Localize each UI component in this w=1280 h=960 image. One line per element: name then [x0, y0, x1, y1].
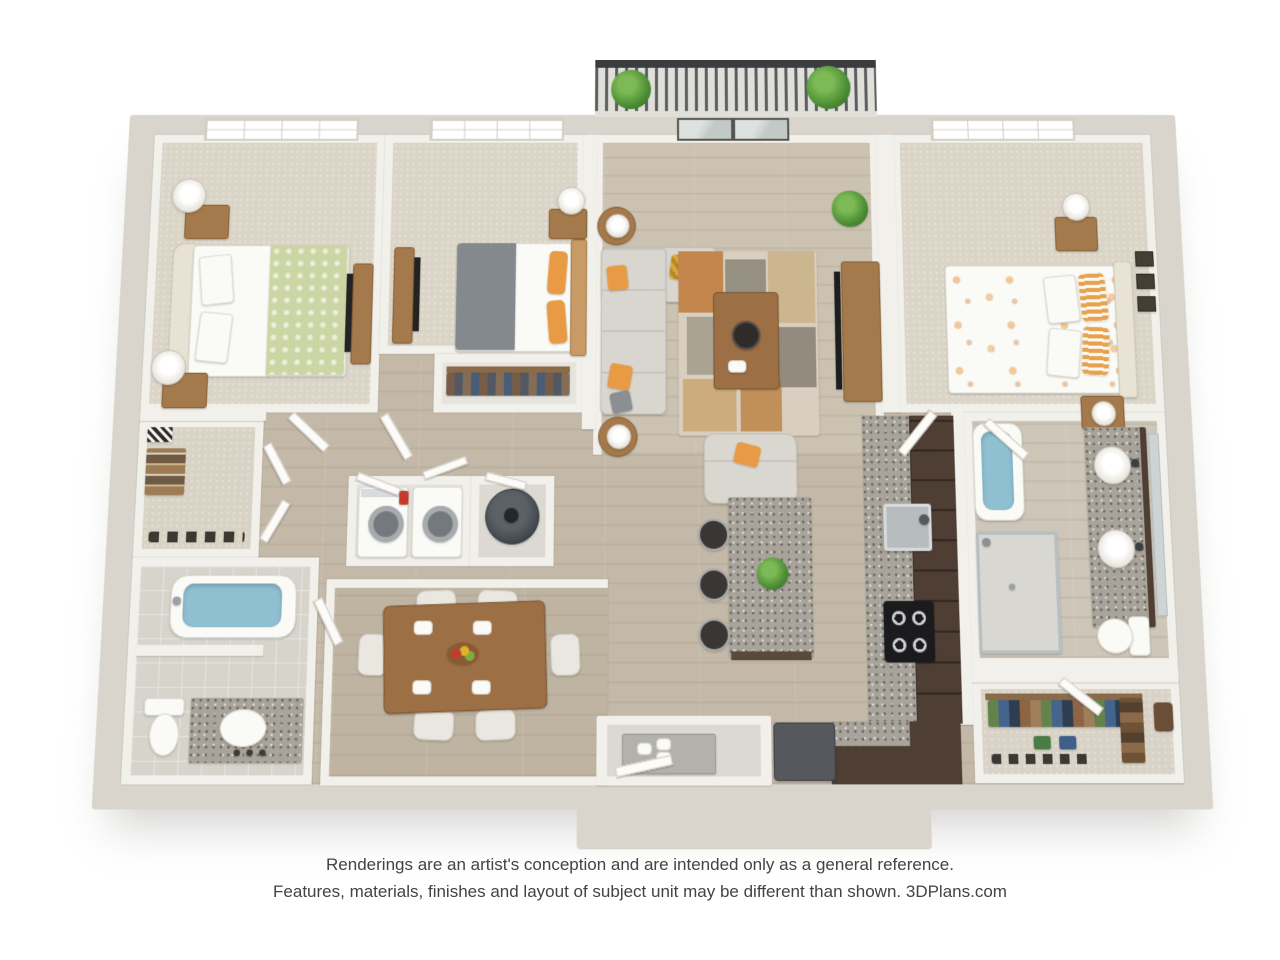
watermark: 3DPlans.com — [906, 882, 1007, 901]
orange-pillow — [547, 251, 569, 295]
pillow — [1043, 274, 1081, 324]
bathtub-water — [182, 584, 283, 628]
dining-chair — [475, 708, 516, 741]
floor-plan-render: Renderings are an artist's conception an… — [0, 0, 1280, 960]
decor-tray — [732, 321, 761, 350]
faucet — [1131, 459, 1140, 467]
entry-vestibule — [577, 786, 933, 850]
kitchen-counter — [861, 416, 917, 724]
disclaimer-line-2-text: Features, materials, finishes and layout… — [273, 882, 901, 901]
floor-plan — [92, 115, 1214, 809]
decor-book — [728, 360, 747, 372]
rug-patch — [777, 327, 817, 387]
kitchen-sink — [883, 504, 932, 551]
bar-stool — [698, 568, 730, 601]
french-door-right — [733, 118, 789, 141]
dining-chair — [550, 633, 581, 676]
place-setting — [472, 680, 491, 694]
french-door-left — [677, 118, 733, 141]
entry-decor — [656, 738, 671, 750]
tv-dresser — [392, 247, 415, 343]
kitchen-faucet — [919, 514, 930, 525]
bed-headboard — [570, 239, 587, 356]
wall-bath-divider — [136, 645, 263, 656]
balcony — [595, 60, 877, 117]
bar-stool — [698, 519, 730, 551]
shoes-row — [148, 532, 245, 543]
disclaimer: Renderings are an artist's conception an… — [0, 851, 1280, 905]
picture-frame — [1136, 274, 1155, 289]
striped-pillow — [1077, 273, 1109, 322]
pillow — [194, 311, 233, 363]
window-master-bedroom — [930, 118, 1075, 141]
entry-decor — [637, 743, 652, 755]
bar-stool — [698, 618, 730, 651]
faucet — [1135, 542, 1144, 551]
shower-head — [982, 538, 991, 547]
picture-frame — [1135, 251, 1154, 266]
tv-dresser — [350, 263, 373, 364]
table-lamp — [557, 187, 585, 215]
pillow — [1046, 328, 1082, 379]
pillow — [199, 254, 234, 306]
closet-shelves — [144, 448, 186, 495]
refrigerator — [773, 723, 836, 781]
window-bedroom-1 — [204, 118, 359, 141]
table-lamp — [1091, 401, 1117, 426]
tv-console — [841, 261, 883, 402]
dining-chair — [412, 708, 455, 742]
disclaimer-line-1: Renderings are an artist's conception an… — [0, 851, 1280, 878]
orange-pillow — [546, 300, 568, 345]
place-setting — [414, 621, 433, 635]
kitchen-corner-counter — [831, 721, 910, 746]
place-setting — [412, 680, 431, 694]
disclaimer-line-2: Features, materials, finishes and layout… — [0, 878, 1280, 905]
shower-drain — [1009, 584, 1016, 591]
table-lamp — [605, 214, 629, 238]
island-base — [731, 651, 811, 660]
bag — [1153, 702, 1174, 731]
wall-master-bath-closet — [972, 667, 1179, 683]
hanging-clothes — [1119, 698, 1146, 763]
cooktop — [883, 601, 935, 663]
wall-bedroom1-closet — [140, 410, 266, 421]
striped-box — [147, 427, 173, 442]
green-duvet — [266, 245, 348, 375]
striped-pillow — [1082, 326, 1110, 375]
gray-pillow — [609, 390, 633, 415]
gray-duvet — [455, 243, 516, 350]
potted-plant-icon — [611, 70, 651, 109]
orange-pillow — [607, 363, 634, 392]
nightstand — [1054, 217, 1098, 251]
detergent-bottle — [399, 491, 409, 505]
walk-in-shower — [976, 532, 1062, 654]
picture-frame — [1137, 296, 1156, 311]
toilet — [1096, 618, 1133, 653]
island-plant-icon — [757, 557, 789, 590]
kitchen-cabinets — [909, 416, 963, 724]
orange-pillow — [606, 265, 629, 292]
hanging-clothes — [446, 373, 570, 396]
table-lamp — [606, 424, 631, 449]
shoes-row — [991, 754, 1094, 764]
hanging-clothes — [987, 700, 1137, 727]
window-bedroom-2 — [429, 118, 564, 141]
storage-bin — [1033, 736, 1051, 749]
tall-plant-icon — [831, 191, 868, 227]
table-lamp — [1061, 193, 1091, 221]
potted-plant-icon — [806, 66, 851, 109]
place-setting — [473, 621, 492, 635]
storage-bin — [1059, 736, 1077, 749]
